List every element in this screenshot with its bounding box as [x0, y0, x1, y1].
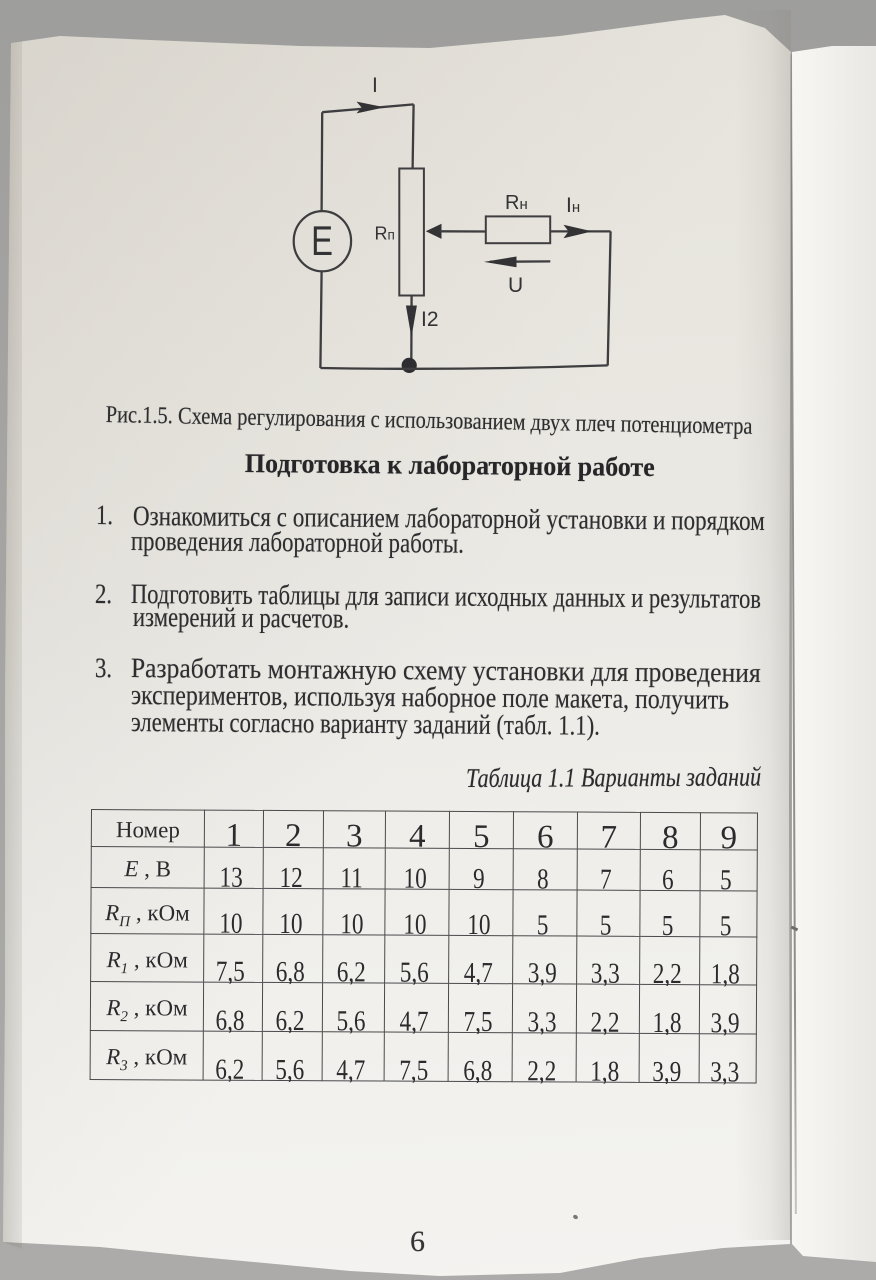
svg-text:I: I	[372, 74, 378, 97]
svg-text:U: U	[508, 274, 523, 297]
svg-text:Rп: Rп	[375, 224, 395, 244]
svg-text:Iн: Iн	[566, 194, 580, 217]
svg-text:I2: I2	[421, 308, 439, 331]
svg-text:Rн: Rн	[505, 192, 528, 214]
svg-text:E: E	[311, 217, 333, 264]
